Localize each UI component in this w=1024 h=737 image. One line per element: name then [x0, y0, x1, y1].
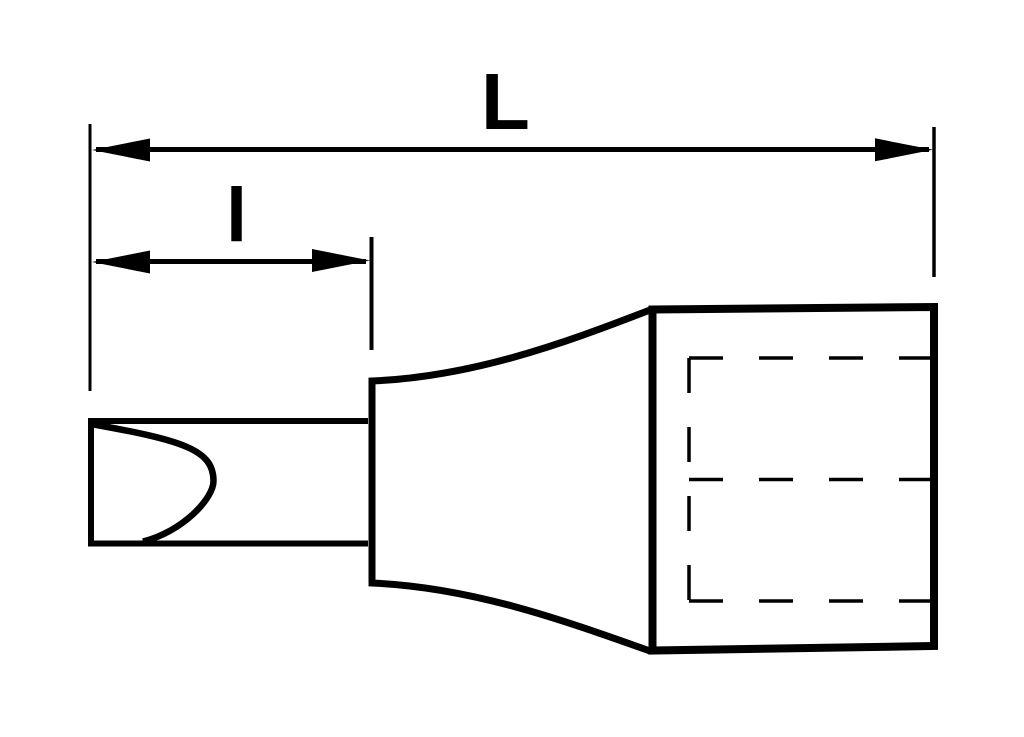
svg-text:L: L: [481, 57, 530, 146]
svg-text:l: l: [226, 173, 247, 258]
